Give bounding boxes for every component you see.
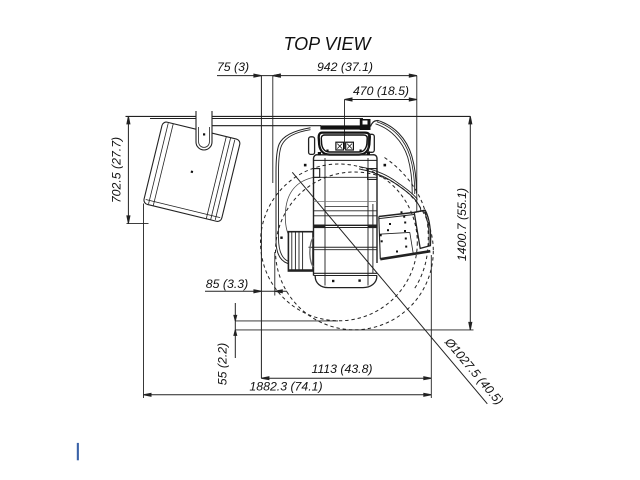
svg-text:55 (2.2): 55 (2.2) [216,343,230,385]
svg-text:470 (18.5): 470 (18.5) [353,84,409,98]
svg-text:1113 (43.8): 1113 (43.8) [311,362,372,376]
svg-text:1882.3 (74.1): 1882.3 (74.1) [249,379,322,393]
svg-text:Ø1027.5 (40.5): Ø1027.5 (40.5) [441,334,506,407]
svg-text:75 (3): 75 (3) [217,60,249,74]
svg-text:TOP VIEW: TOP VIEW [283,34,372,54]
svg-text:702.5 (27.7): 702.5 (27.7) [109,137,123,203]
svg-text:942 (37.1): 942 (37.1) [317,60,373,74]
svg-text:85 (3.3): 85 (3.3) [206,277,248,291]
svg-text:1400.7 (55.1): 1400.7 (55.1) [455,188,469,261]
